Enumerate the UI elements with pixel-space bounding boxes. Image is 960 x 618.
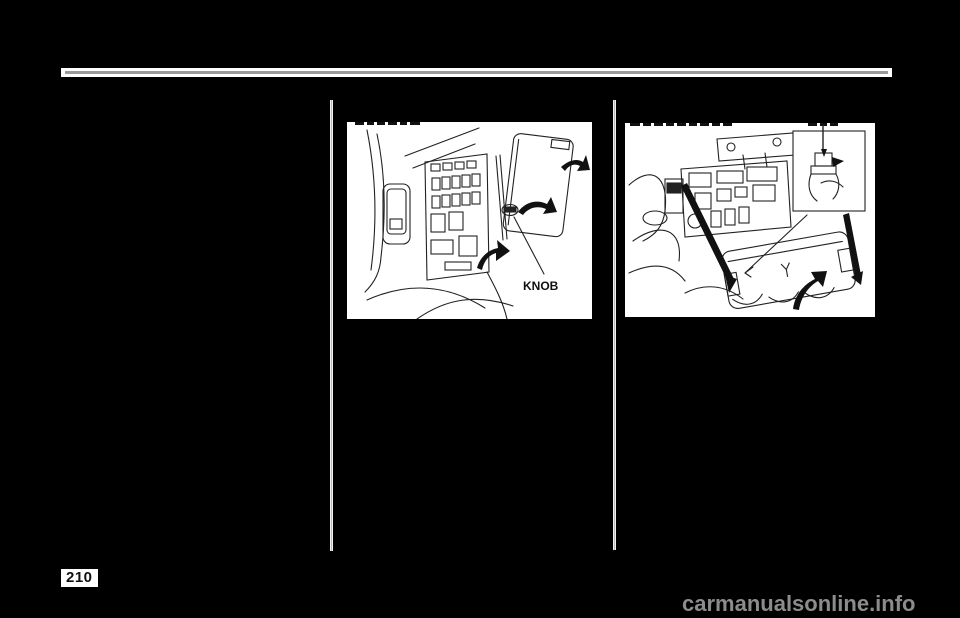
watermark-text: carmanualsonline.info <box>682 591 916 617</box>
curved-arrow-icon <box>477 155 590 270</box>
fuse-box-cluster <box>665 161 791 237</box>
fuse-box-cover <box>720 231 857 314</box>
interior-fuse-box-drawing: KNOB <box>347 122 592 319</box>
underhood-fuse-box-drawing <box>625 123 875 317</box>
clipped-caption-sliver <box>630 123 838 126</box>
knob-leader-line <box>514 217 544 274</box>
column-divider-right <box>613 100 616 550</box>
fuse-rows <box>431 161 480 270</box>
top-horizontal-rule-line <box>65 71 888 74</box>
detail-inset <box>793 125 865 211</box>
clipped-caption-sliver <box>355 122 420 125</box>
column-divider-left <box>330 100 333 551</box>
knob-label: KNOB <box>523 279 559 293</box>
interior-fuse-box-figure: KNOB <box>347 122 592 319</box>
top-horizontal-rule <box>61 68 892 77</box>
page-number: 210 <box>61 569 98 587</box>
underhood-fuse-box-figure <box>625 123 875 317</box>
